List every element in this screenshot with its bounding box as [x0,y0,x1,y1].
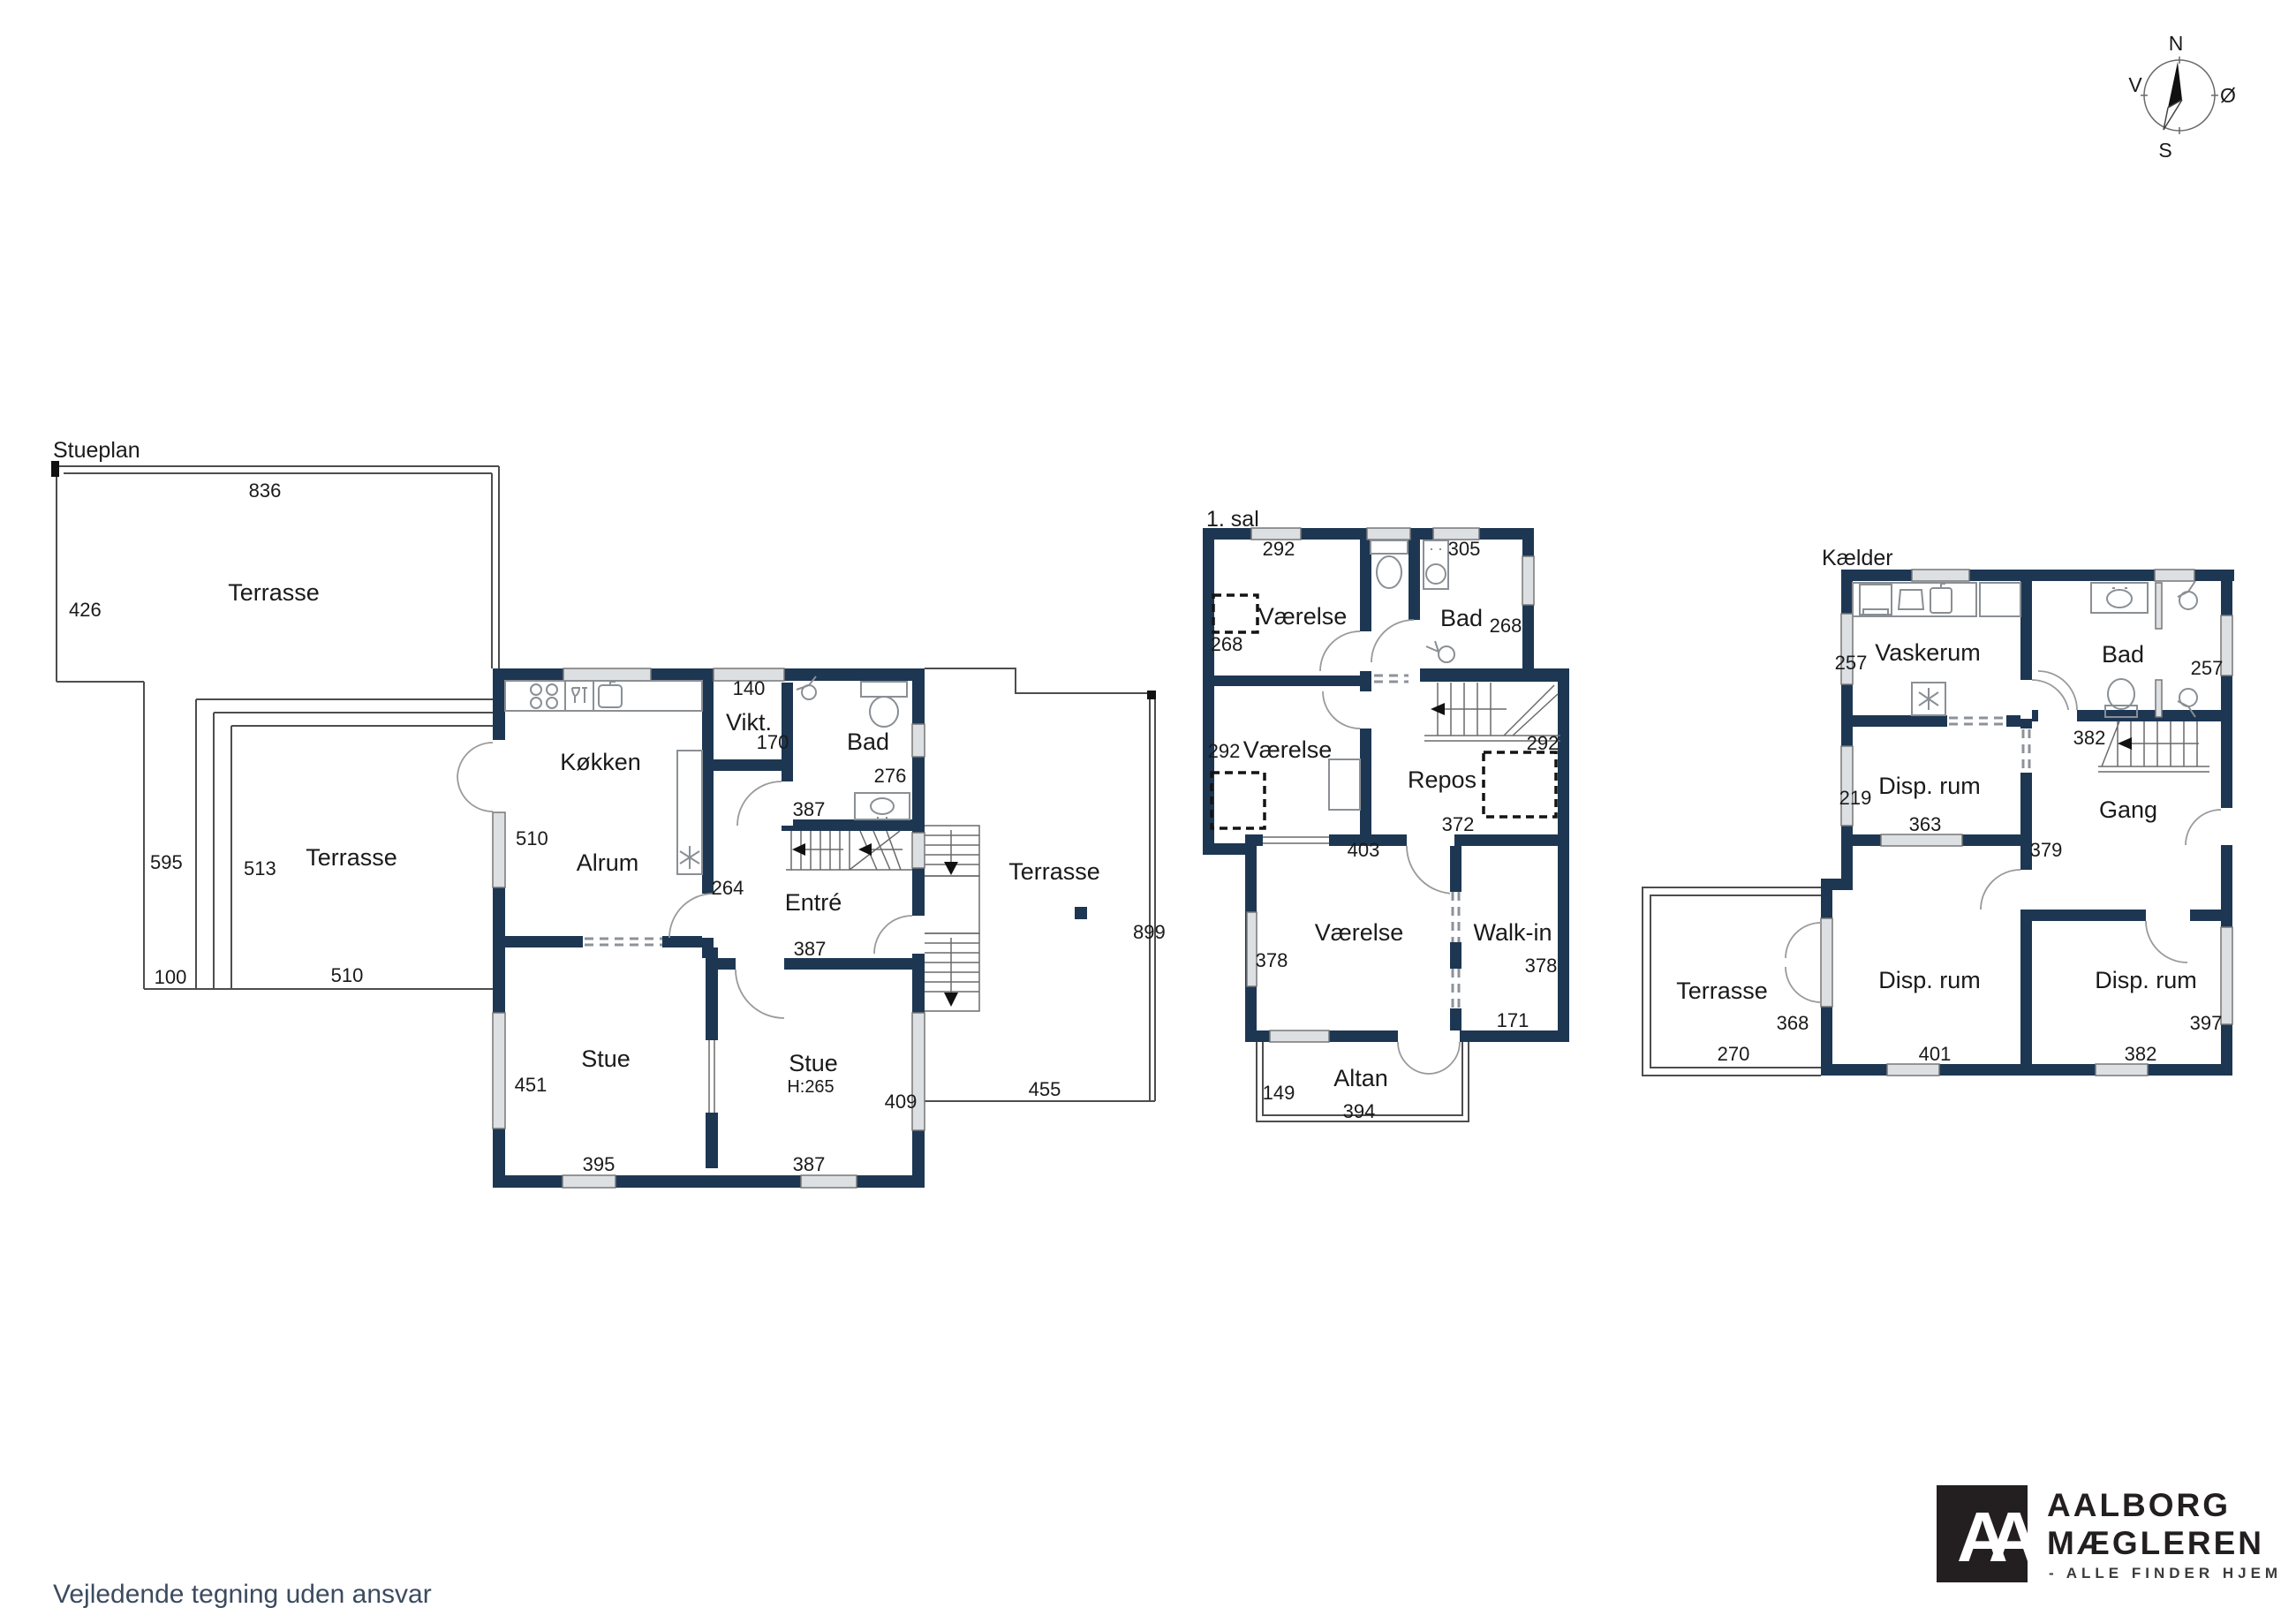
room-label-disp1: Disp. rum [1878,773,1981,799]
room-label-vaerelse1: Værelse [1258,603,1348,630]
measurement: 170 [757,731,789,753]
room-label-disp2: Disp. rum [1878,967,1981,993]
logo-line2: MÆGLEREN [2047,1525,2264,1561]
room-label-koekken: Køkken [560,749,641,775]
exterior-stairs [923,826,979,1011]
measurement: 264 [712,877,744,899]
measurement: 401 [1919,1043,1952,1065]
plan-1-sal: 1. sal [1203,507,1569,1122]
measurement: 395 [583,1153,616,1175]
skylight-window [1212,773,1265,828]
kitchen-counter [505,681,702,711]
plan-title: Stueplan [53,438,140,463]
measurement: 219 [1839,787,1872,809]
measurement: 305 [1448,538,1481,560]
toilet-icon [1371,540,1408,588]
measurement: 382 [2073,727,2106,749]
room-label-bad: Bad [2102,641,2144,668]
freezer-icon [1912,683,1945,715]
compass-e: Ø [2220,84,2236,107]
shower-rail [2156,680,2162,717]
measurement: 899 [1133,921,1166,943]
measurement: 394 [1343,1100,1376,1122]
measurement: 140 [733,677,766,699]
sink-icon [1424,540,1448,589]
room-label-terrasse-top: Terrasse [228,579,320,606]
plan-stueplan: Stueplan 836 Terrasse 426 595 513 100 51… [51,438,1166,1188]
skylight-window [1484,752,1556,817]
measurement: 276 [874,765,907,787]
measurement: 387 [793,1153,826,1175]
measurement: 387 [794,938,827,960]
measurement: 171 [1497,1009,1529,1031]
measurement: 513 [244,857,276,879]
measurement: 510 [516,827,548,849]
compass-w: V [2128,73,2142,96]
measurement: 426 [69,599,102,621]
room-label-terrasse: Terrasse [1676,978,1768,1004]
measurement: 409 [885,1091,918,1113]
measurement: 363 [1909,813,1942,835]
room-label-entre: Entré [785,889,842,916]
room-label-walkin: Walk-in [1473,919,1552,946]
measurement: 268 [1490,615,1522,637]
measurement: 257 [1835,652,1868,674]
measurement: 455 [1029,1078,1061,1100]
room-label-alrum: Alrum [577,849,639,876]
room-height-label: H:265 [787,1077,834,1097]
room-label-vaerelse2: Værelse [1243,736,1333,763]
sink-vanity-icon [2091,583,2148,613]
floorplan-page: Stueplan 836 Terrasse 426 595 513 100 51… [0,0,2296,1623]
measurement: 382 [2125,1043,2157,1065]
measurement: 372 [1442,813,1475,835]
chimney [1329,759,1360,810]
room-label-stue2: Stue [789,1050,838,1076]
compass-s: S [2158,139,2171,162]
measurement: 368 [1777,1012,1809,1034]
measurement: 268 [1211,633,1243,655]
shower-rail [2156,583,2162,629]
skylight-window [1213,595,1258,632]
room-label-terrasse-right: Terrasse [1008,858,1100,885]
terrace-right-outline [925,668,1156,1101]
measurement: 378 [1256,949,1288,971]
measurement: 292 [1527,732,1560,754]
measurement: 149 [1263,1082,1295,1104]
tall-cabinet-freezer [677,751,702,874]
room-label-disp3: Disp. rum [2095,967,2197,993]
measurement: 257 [2191,657,2224,679]
measurement: 510 [331,964,364,986]
room-label-gang: Gang [2099,796,2157,823]
room-label-stue1: Stue [581,1046,631,1072]
sink-vanity-icon [855,793,910,819]
basement-stairs [2098,721,2209,772]
terrace-top-outline [51,461,499,989]
measurement: 451 [515,1074,548,1096]
compass-rose: N Ø S V [2128,32,2236,162]
measurement: 100 [155,966,187,988]
measurement: 397 [2190,1012,2223,1034]
logo-line1: AALBORG [2047,1487,2231,1523]
measurement: 292 [1208,740,1241,762]
floorplan-drawing: Stueplan 836 Terrasse 426 595 513 100 51… [0,0,2296,1623]
plan-title: Kælder [1822,546,1893,570]
measurement: 379 [2030,839,2063,861]
aalborg-maegleren-logo: AA AALBORG MÆGLEREN - ALLE FINDER HJEM [1937,1485,2282,1582]
room-label-vaerelse3: Værelse [1315,919,1404,946]
measurement: 292 [1263,538,1295,560]
toilet-icon [861,682,907,727]
room-label-altan: Altan [1333,1065,1388,1091]
room-label-bad: Bad [1440,605,1483,631]
room-label-bad: Bad [847,728,889,755]
measurement: 403 [1348,839,1380,861]
room-label-vaskerum: Vaskerum [1875,639,1981,666]
measurement: 378 [1525,955,1558,977]
compass-n: N [2169,32,2184,55]
room-label-repos: Repos [1408,766,1477,793]
measurement: 836 [249,479,282,502]
plan-kaelder: Kælder [1643,546,2234,1076]
disclaimer-text: Vejledende tegning uden ansvar [53,1580,432,1609]
hand-shower-icon [1426,641,1454,662]
measurement: 595 [150,851,183,873]
basement-openings [1786,570,2232,1076]
shower-icon [2178,581,2197,609]
logo-tagline: - ALLE FINDER HJEM [2049,1565,2282,1581]
room-label-terrasse-left: Terrasse [306,844,397,871]
stairs [786,831,912,870]
measurement: 270 [1718,1043,1750,1065]
measurement: 387 [793,798,826,820]
